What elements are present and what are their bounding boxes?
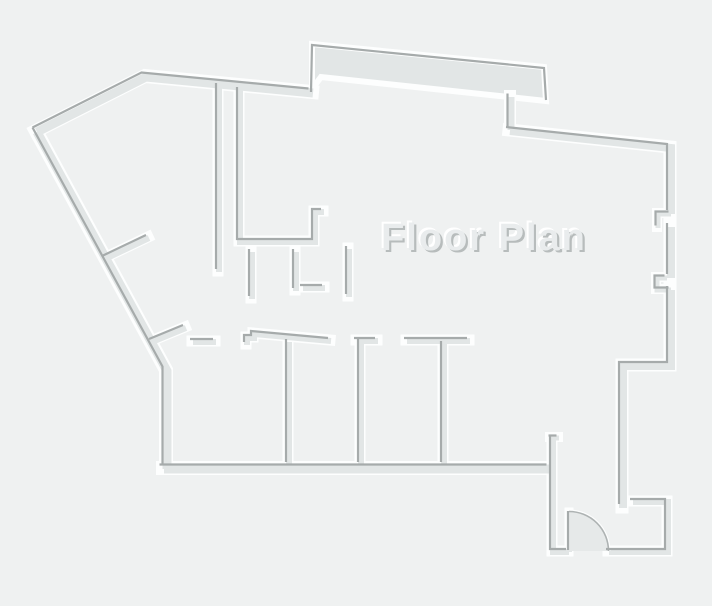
right-lower-wall-halo [622,289,670,507]
floor-plan-stage: Floor Plan Floor Plan Floor Plan [0,0,712,606]
closet-wall-halo [239,89,323,241]
floor-plan-title: Floor Plan [381,217,587,259]
wall-body-layer [37,77,671,552]
exterior-left-wall-halo [36,131,166,468]
title-group: Floor Plan Floor Plan Floor Plan [379,215,589,261]
closet-wall-edge [237,87,321,239]
floor-plan-canvas: Floor Plan Floor Plan Floor Plan [0,0,712,606]
exterior-left-wall-edge [33,128,163,465]
right-upper-wall [510,131,671,214]
door-swing [569,512,609,552]
